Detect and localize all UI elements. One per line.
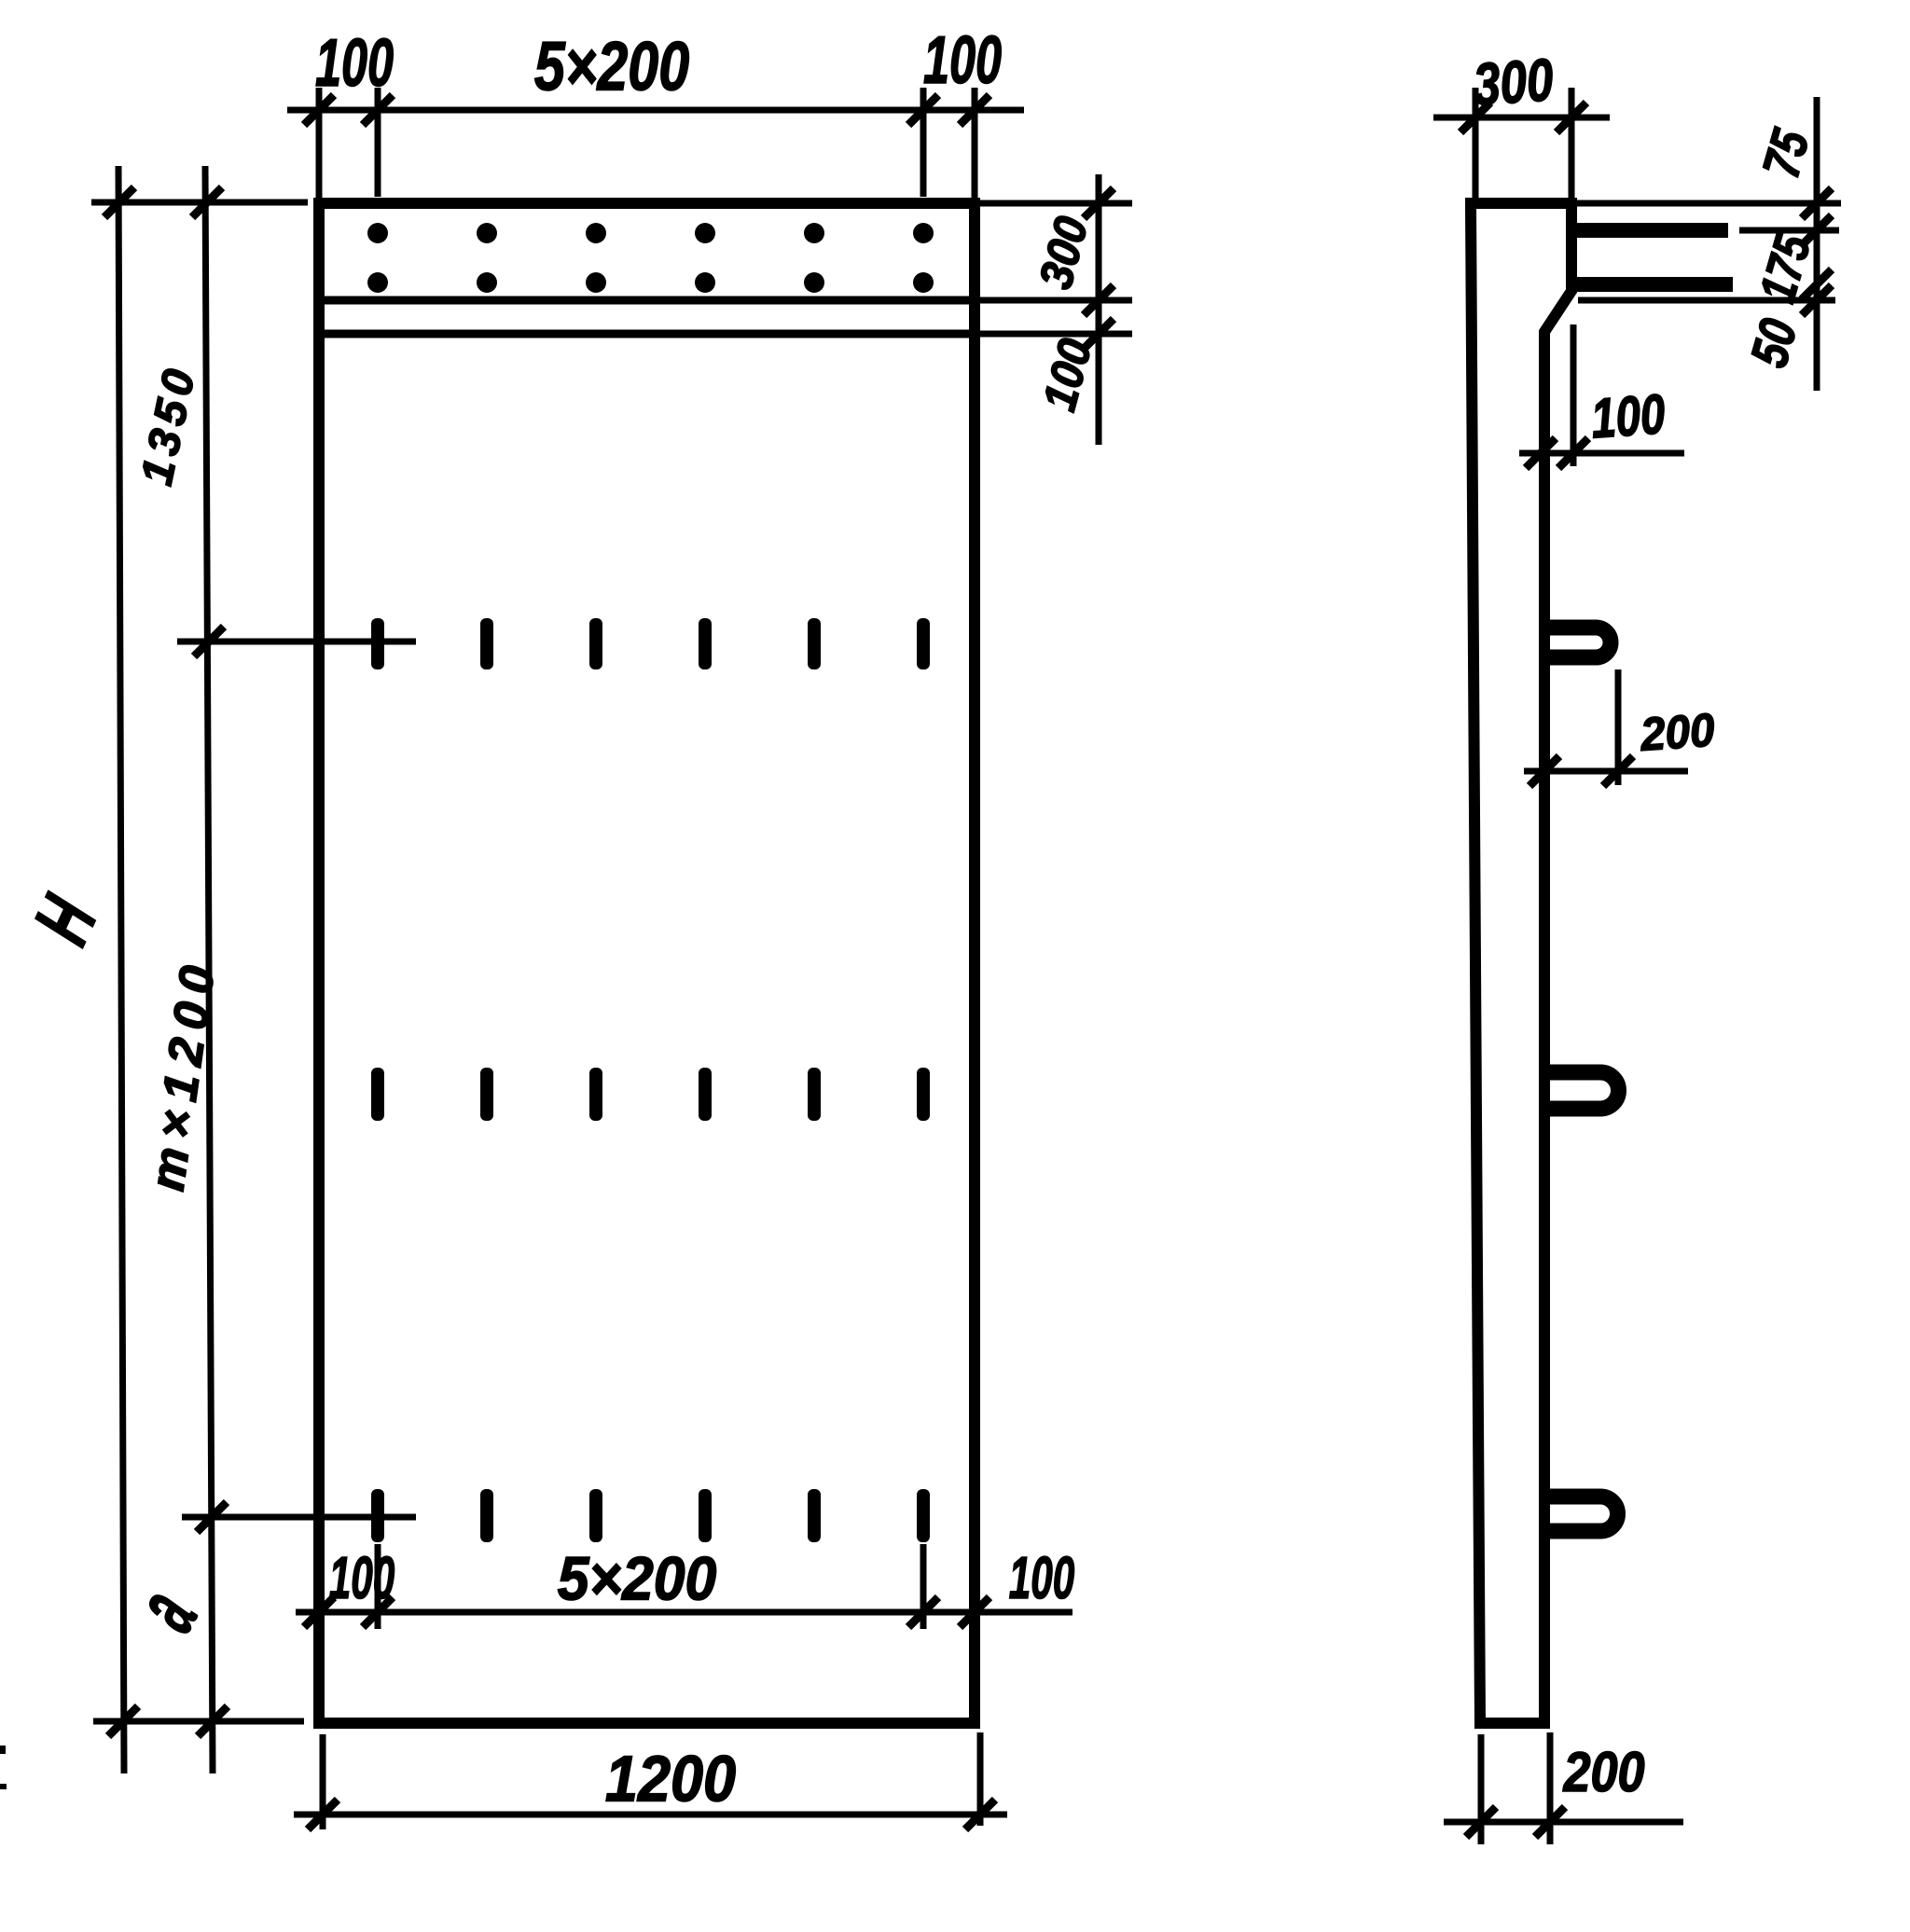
svg-text:1200: 1200 (605, 1743, 736, 1815)
svg-text:100: 100 (315, 26, 394, 101)
svg-text:5×200: 5×200 (558, 1545, 717, 1613)
svg-text:5×200: 5×200 (534, 28, 689, 105)
svg-text:100: 100 (1009, 1545, 1074, 1611)
svg-text:100: 100 (1589, 383, 1668, 450)
svg-text:100: 100 (923, 23, 1002, 98)
svg-text:200: 200 (1563, 1740, 1645, 1802)
svg-text:300: 300 (1472, 48, 1556, 118)
svg-text:200: 200 (1638, 704, 1716, 761)
svg-text:100: 100 (329, 1545, 394, 1611)
